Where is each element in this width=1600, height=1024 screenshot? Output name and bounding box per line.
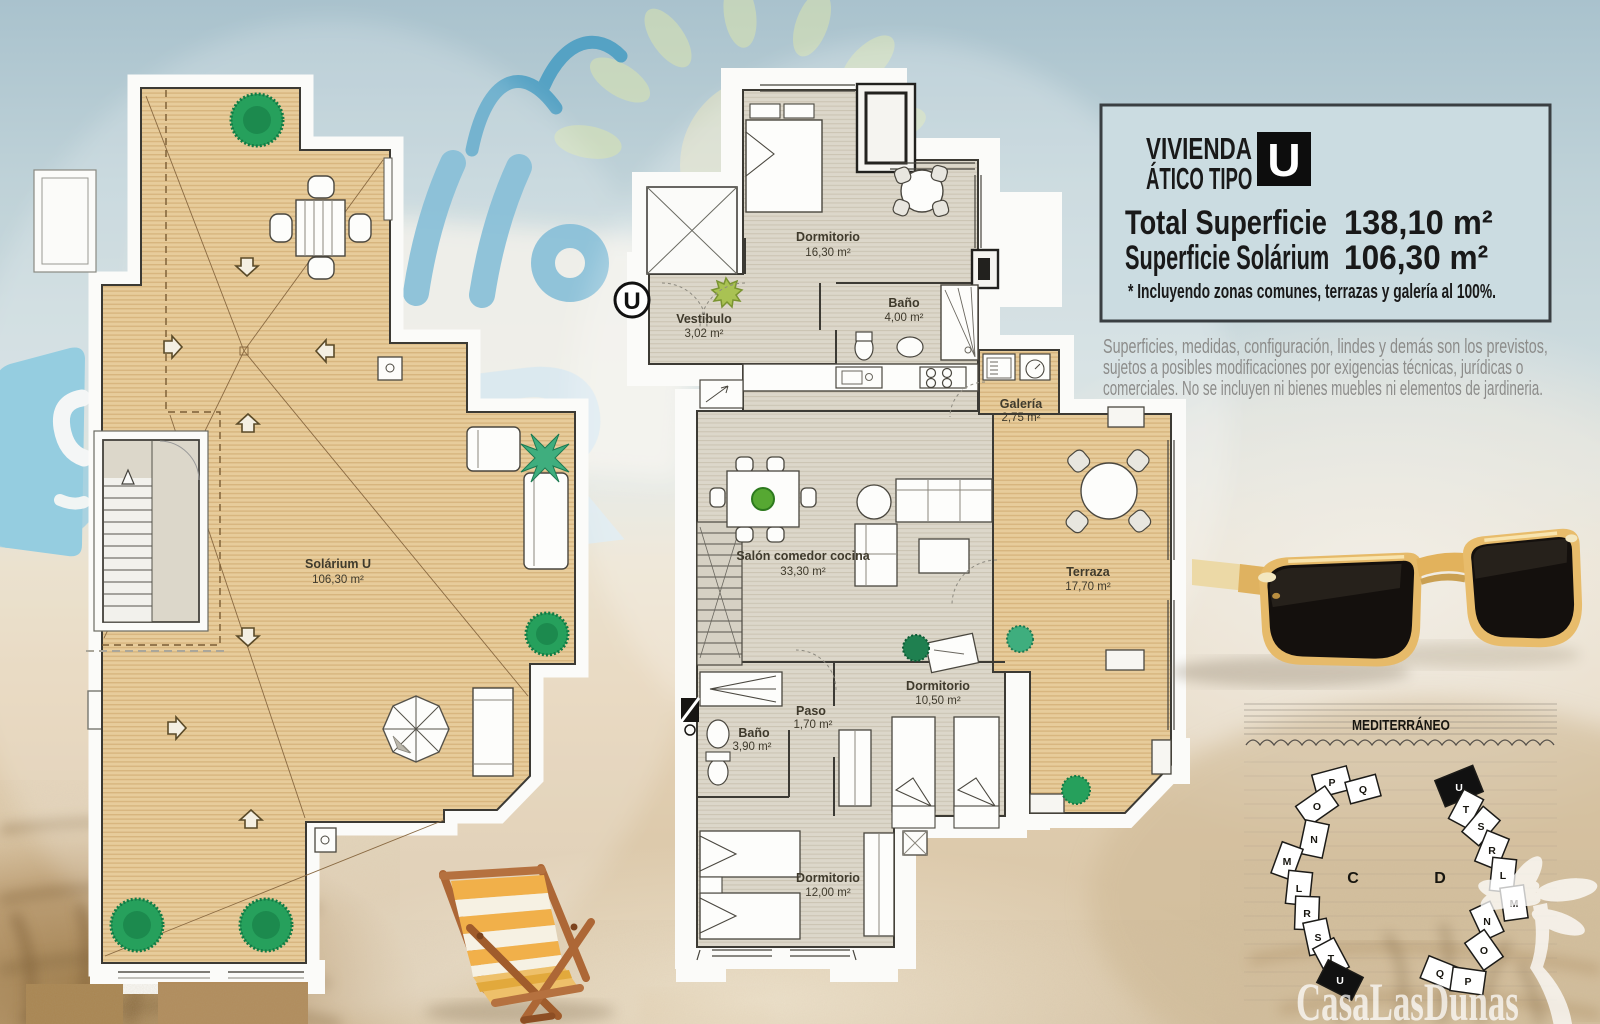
svg-text:T: T <box>1463 804 1470 816</box>
svg-text:* Incluyendo zonas comunes, te: * Incluyendo zonas comunes, terrazas y g… <box>1128 279 1496 302</box>
svg-text:Solárium U: Solárium U <box>305 557 371 571</box>
svg-text:17,70 m²: 17,70 m² <box>1065 581 1111 593</box>
svg-text:R: R <box>1488 845 1496 857</box>
svg-text:Terraza: Terraza <box>1066 565 1111 579</box>
svg-text:10,50 m²: 10,50 m² <box>915 695 961 707</box>
svg-text:Baño: Baño <box>738 726 770 740</box>
svg-text:4,00 m²: 4,00 m² <box>885 312 924 324</box>
svg-text:16,30 m²: 16,30 m² <box>805 247 851 259</box>
svg-text:U: U <box>1455 782 1463 794</box>
svg-text:R: R <box>1303 908 1311 920</box>
svg-text:U: U <box>623 288 640 315</box>
svg-text:Dormitorio: Dormitorio <box>796 230 860 244</box>
svg-text:VIVIENDA: VIVIENDA <box>1146 132 1252 166</box>
svg-text:U: U <box>1267 134 1300 186</box>
svg-text:106,30 m²: 106,30 m² <box>312 574 364 586</box>
svg-text:1,70 m²: 1,70 m² <box>794 719 833 731</box>
svg-text:comerciales. No se incluyen ni: comerciales. No se incluyen ni bienes mu… <box>1103 376 1543 400</box>
svg-text:T: T <box>1328 953 1335 965</box>
svg-text:33,30 m²: 33,30 m² <box>780 566 826 578</box>
svg-text:Total Superficie: Total Superficie <box>1125 203 1327 242</box>
svg-text:P: P <box>1328 777 1335 789</box>
svg-text:N: N <box>1483 916 1491 928</box>
svg-text:C: C <box>1347 870 1359 887</box>
svg-text:Q: Q <box>1359 784 1367 796</box>
svg-text:L: L <box>1296 883 1303 895</box>
svg-text:S: S <box>1314 932 1321 944</box>
svg-text:2,75 m²: 2,75 m² <box>1002 412 1041 424</box>
svg-text:Vestibulo: Vestibulo <box>676 312 732 326</box>
svg-text:Dormitorio: Dormitorio <box>796 871 860 885</box>
svg-text:ÁTICO TIPO: ÁTICO TIPO <box>1146 161 1252 196</box>
svg-text:S: S <box>1477 821 1484 833</box>
svg-text:N: N <box>1310 834 1318 846</box>
svg-text:3,02 m²: 3,02 m² <box>685 328 724 340</box>
svg-text:Salón comedor cocina: Salón comedor cocina <box>736 549 870 563</box>
svg-text:CasaLasDunas: CasaLasDunas <box>1296 971 1519 1024</box>
svg-text:MEDITERRÁNEO: MEDITERRÁNEO <box>1352 717 1450 734</box>
svg-text:12,00 m²: 12,00 m² <box>805 887 851 899</box>
svg-text:Superficie Solárium: Superficie Solárium <box>1125 239 1329 277</box>
svg-text:106,30 m²: 106,30 m² <box>1344 238 1488 276</box>
svg-text:D: D <box>1434 870 1446 887</box>
svg-text:Dormitorio: Dormitorio <box>906 679 970 693</box>
svg-text:Superficies, medidas, configur: Superficies, medidas, configuración, lin… <box>1103 334 1548 357</box>
svg-text:Galería: Galería <box>1000 397 1043 411</box>
svg-text:M: M <box>1283 856 1292 868</box>
svg-text:Baño: Baño <box>888 296 920 310</box>
svg-text:Paso: Paso <box>796 704 826 718</box>
svg-text:O: O <box>1313 801 1321 813</box>
svg-text:138,10 m²: 138,10 m² <box>1344 204 1493 242</box>
svg-text:O: O <box>1480 945 1488 957</box>
svg-text:3,90 m²: 3,90 m² <box>733 741 772 753</box>
